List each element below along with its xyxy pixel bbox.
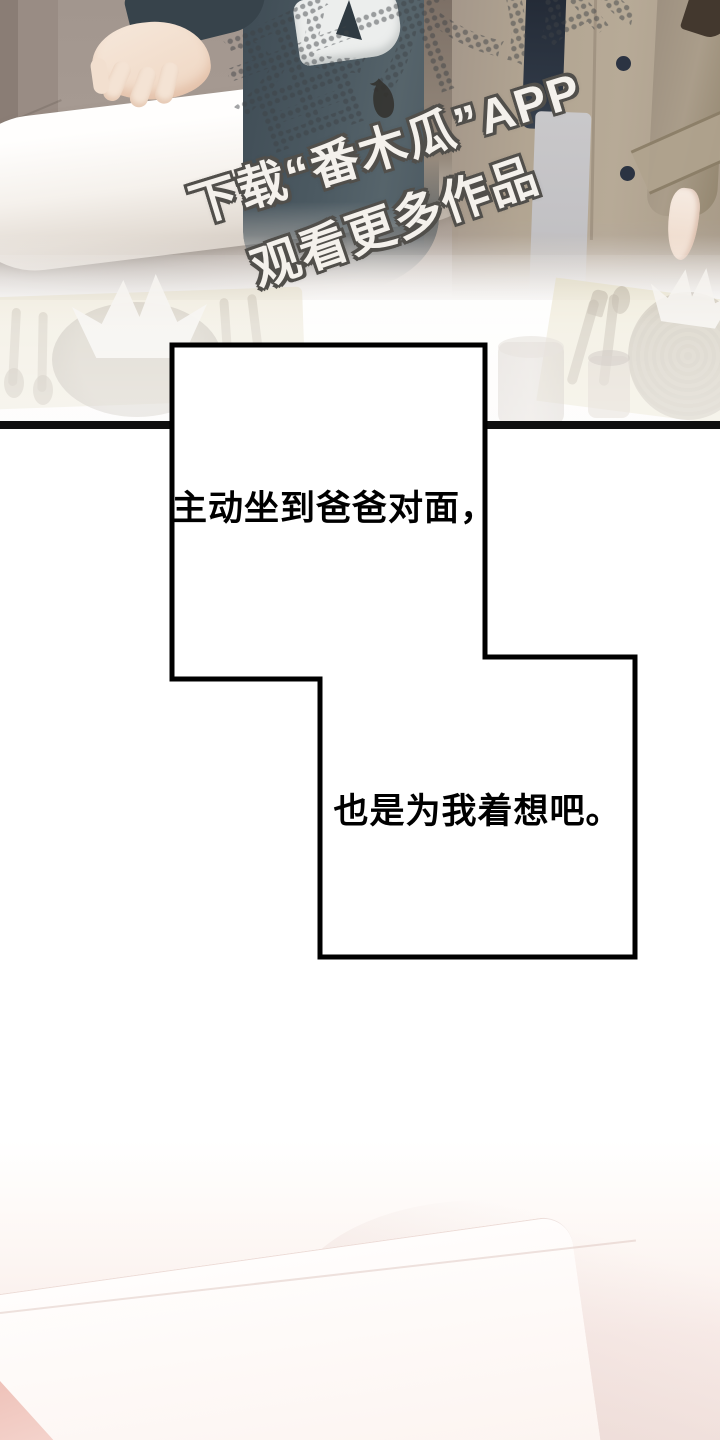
top-scene-dining: 番木瓜 下载“番木瓜”APP 观看更多作品 (0, 0, 720, 430)
panel-divider-line (0, 421, 720, 429)
white-surface (0, 1214, 605, 1440)
caption-text-2: 也是为我着想吧。 (320, 791, 635, 833)
caption-text-1: 主动坐到爸爸对面， (172, 488, 485, 530)
caption-union-border (172, 345, 635, 957)
coat-button (616, 56, 631, 71)
bottom-scene-soft-pink (0, 1140, 720, 1440)
coat-button (620, 166, 635, 181)
comic-page: 番木瓜 下载“番木瓜”APP 观看更多作品 主动坐到爸爸对面， 也是为我着想吧。 (0, 0, 720, 1440)
faded-white-veil (0, 255, 720, 430)
